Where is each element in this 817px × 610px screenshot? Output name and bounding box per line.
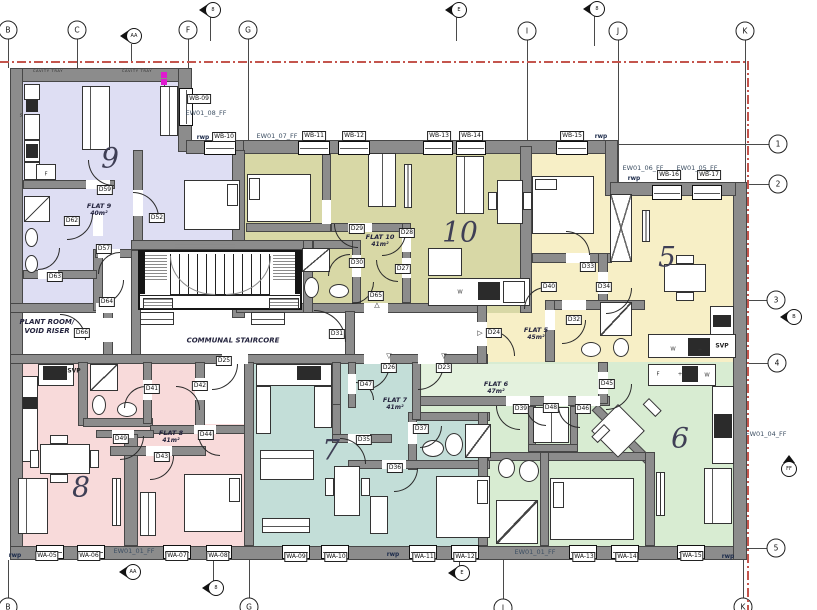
kitchen-unit (256, 386, 271, 434)
ttext (143, 255, 167, 281)
dining-table (40, 444, 90, 474)
window-tag-wa-12: WA-12 (453, 552, 476, 562)
door-tag-d36: D36 (387, 463, 403, 473)
section-marker-aa: AA (119, 564, 141, 580)
sdiv (140, 295, 300, 296)
window-tag-wa-14: WA-14 (615, 552, 638, 562)
srail (295, 252, 300, 294)
text-s: s (20, 112, 23, 118)
room-label-plant-room: PLANT ROOM/VOID RISER (20, 318, 75, 336)
window-tag-wa-08: WA-08 (206, 551, 229, 561)
text-: ▽ (441, 352, 446, 360)
radiator (656, 472, 665, 516)
site-boundary (747, 61, 749, 610)
room-number-6: 6 (671, 422, 689, 455)
a2: 41m² (383, 404, 407, 412)
text-f: F (656, 371, 659, 377)
text-ew01-06-ff: EW01_06_FF (622, 164, 663, 172)
room-number-8: 8 (72, 471, 90, 504)
circ: AA (125, 564, 141, 580)
pillow (553, 482, 564, 508)
room-label-communal-staircore: COMMUNAL STAIRCORE (187, 337, 280, 346)
door-tag-d24: D24 (486, 328, 502, 338)
window-tag-wa-15: WA-15 (680, 551, 703, 561)
grid-bubble-i: I (494, 599, 513, 610)
oven (713, 315, 731, 327)
gap (322, 200, 331, 224)
window-wb10 (204, 141, 236, 155)
pillow (477, 480, 488, 504)
section-marker-8: 8 (202, 580, 224, 596)
circ: E (454, 565, 470, 581)
gap (562, 300, 586, 310)
window-tag-wb-14: WB-14 (459, 131, 483, 141)
floor-plan: D59D62D52D57D63D64D66D31D25D29D28D30D27D… (0, 0, 817, 610)
chair (30, 450, 39, 468)
wardrobe (140, 492, 156, 536)
pillow (249, 178, 260, 200)
wall (540, 452, 549, 546)
circ: FF (781, 461, 797, 477)
radiator (404, 164, 412, 208)
chair (90, 450, 99, 468)
circ: 8 (208, 580, 224, 596)
gline (527, 40, 528, 140)
stair-landing (140, 312, 174, 325)
kitchen-unit (24, 84, 40, 100)
circ: 8 (205, 2, 221, 18)
chair (325, 478, 334, 496)
door-tag-d45: D45 (599, 379, 615, 389)
div: PLANT ROOM/ (20, 318, 75, 327)
window-tag-wa-05: WA-05 (35, 551, 58, 561)
grid-bubble-1: 1 (769, 135, 788, 154)
sink (297, 366, 321, 380)
window-tag-wa-07: WA-07 (165, 551, 188, 561)
gline (213, 560, 214, 581)
text-: + (698, 347, 703, 353)
door-tag-d44: D44 (198, 430, 214, 440)
a2: 47m² (484, 388, 508, 396)
window-wb15 (556, 141, 588, 155)
door-tag-d52: D52 (149, 213, 165, 223)
door-tag-d49: D49 (113, 434, 129, 444)
staircase (138, 250, 302, 310)
text-cavity-tray: CAVITY TRAY (33, 69, 63, 73)
shower (24, 196, 50, 222)
toilet (613, 338, 629, 357)
door-tag-d33: D33 (580, 262, 596, 272)
door-tag-d29: D29 (349, 224, 365, 234)
window-tag-wb-13: WB-13 (427, 131, 451, 141)
flat-label-flat-9: FLAT 940m² (87, 202, 111, 218)
kitchen-unit (314, 386, 332, 428)
grid-bubble-k: K (734, 598, 753, 610)
text-f: F (44, 171, 47, 177)
text-ew01-05-ff: EW01_05_FF (676, 164, 717, 172)
text-svp: SVP (715, 343, 728, 350)
circ: AA (126, 28, 142, 44)
mag (161, 72, 167, 78)
window-wb17 (692, 185, 722, 200)
gline (77, 39, 78, 68)
window-tag-wb-09: WB-09 (187, 94, 211, 104)
pillow (227, 184, 238, 206)
toilet (519, 460, 539, 482)
section-marker-b: B (780, 309, 802, 325)
flat-label-flat-10: FLAT 1041m² (366, 233, 395, 249)
door-tag-d47: D47 (358, 380, 374, 390)
door-tag-d25: D25 (216, 356, 232, 366)
shower (90, 364, 118, 391)
wall (645, 452, 655, 546)
oven (26, 100, 38, 112)
dining-table (334, 466, 360, 516)
door-tag-d64: D64 (99, 297, 115, 307)
sbox (143, 298, 173, 309)
text-rwp: rwp (595, 132, 607, 139)
door-tag-d26: D26 (381, 363, 397, 373)
chair (361, 478, 370, 496)
shower (496, 500, 538, 544)
wall (246, 223, 331, 232)
div: VOID RISER (20, 327, 75, 336)
a2: 40m² (87, 210, 111, 218)
sink (478, 282, 500, 300)
grid-bubble-k: K (736, 22, 755, 41)
text-rwp: rwp (9, 551, 21, 558)
door-tag-d65: D65 (368, 291, 384, 301)
gline (249, 560, 250, 600)
window-tag-wb-15: WB-15 (560, 131, 584, 141)
room-number-5: 5 (658, 241, 676, 274)
door-tag-d46: D46 (575, 404, 591, 414)
text-svp: SVP (67, 368, 80, 375)
window-wb14 (456, 141, 486, 155)
grid-bubble-3: 3 (767, 291, 786, 310)
door-tag-d31: D31 (329, 329, 345, 339)
basin (329, 284, 349, 298)
wall (488, 452, 650, 461)
gline (743, 560, 744, 600)
grid-bubble-g: G (239, 21, 258, 40)
sink (43, 366, 67, 380)
window-tag-wa-13: WA-13 (572, 552, 595, 562)
gline (8, 560, 9, 600)
window-tag-wa-10: WA-10 (324, 552, 347, 562)
window-wb12 (338, 141, 370, 155)
flat-label-flat-8: FLAT 841m² (159, 429, 183, 445)
text-cavity-tray: CAVITY TRAY (122, 69, 152, 73)
kitchen-unit (428, 248, 462, 276)
flat-label-flat-7: FLAT 741m² (383, 396, 407, 412)
door-tag-d41: D41 (144, 384, 160, 394)
gline (503, 560, 504, 602)
a2: 45m² (524, 334, 548, 342)
door-tag-d42: D42 (192, 381, 208, 391)
window-tag-wa-11: WA-11 (412, 552, 435, 562)
section-marker-aa: AA (120, 28, 142, 44)
wall (528, 444, 578, 452)
window-tag-wb-12: WB-12 (342, 131, 366, 141)
gline (248, 39, 249, 142)
oven (714, 414, 732, 438)
door-tag-d28: D28 (399, 228, 415, 238)
door-tag-d39: D39 (513, 404, 529, 414)
door-tag-d48: D48 (543, 403, 559, 413)
gline (456, 17, 457, 41)
gline (610, 144, 770, 145)
toilet (304, 277, 319, 298)
window-tag-wa-06: WA-06 (77, 551, 100, 561)
grid-bubble-j: J (609, 22, 628, 41)
window-wb16 (652, 185, 682, 200)
window-tag-wb-11: WB-11 (302, 131, 326, 141)
door-tag-d37: D37 (413, 424, 429, 434)
gline (747, 300, 768, 301)
text-w: W (457, 289, 462, 295)
grid-bubble-i: I (518, 22, 537, 41)
window-wb13 (423, 141, 453, 155)
door-tag-d62: D62 (64, 216, 80, 226)
stair-landing (251, 312, 285, 325)
door-tag-d35: D35 (356, 435, 372, 445)
room-number-9: 9 (101, 142, 119, 175)
chair (676, 292, 694, 301)
srail (140, 252, 145, 294)
text-w: W (670, 346, 675, 352)
door-tag-d40: D40 (541, 282, 557, 292)
gline (747, 363, 768, 364)
text-: ▷ (477, 329, 482, 337)
basin (25, 255, 38, 273)
section-marker-e: E (448, 565, 470, 581)
chair (50, 474, 68, 483)
section-marker-8: 8 (199, 2, 221, 18)
text-: ▽ (386, 352, 391, 360)
a1: FLAT 8 (159, 429, 183, 437)
text-: △ (374, 301, 379, 309)
chair (50, 435, 68, 444)
a2: 41m² (159, 437, 183, 445)
site-boundary (0, 61, 749, 63)
text-rwp: rwp (628, 174, 640, 181)
gline (747, 548, 768, 549)
a2: 41m² (366, 241, 395, 249)
text-ew01-01-ff: EW01_01_FF (113, 547, 154, 555)
section-marker-8: 8 (583, 1, 605, 17)
door-tag-d66: D66 (74, 328, 90, 338)
door-tag-d34: D34 (596, 282, 612, 292)
dresser (370, 496, 388, 534)
room-number-10: 10 (442, 216, 478, 249)
grid-bubble-c: C (68, 21, 87, 40)
coffee-table (262, 518, 310, 533)
text-ew01-08-ff: EW01_08_FF (185, 109, 226, 117)
section-marker-e: E (445, 2, 467, 18)
chair (676, 255, 694, 264)
room-number-7: 7 (322, 434, 340, 467)
toilet (445, 433, 463, 456)
door-tag-d43: D43 (154, 452, 170, 462)
wardrobe (160, 86, 178, 136)
dining-table (497, 180, 523, 224)
door-tag-d27: D27 (395, 264, 411, 274)
sofa (18, 478, 48, 534)
grid-bubble-g: G (240, 598, 259, 610)
sink (682, 366, 698, 382)
text-: + (678, 371, 683, 377)
text-ew01-04-ff: EW01_04_FF (745, 430, 786, 438)
grid-bubble-5: 5 (767, 539, 786, 558)
hob (26, 144, 38, 158)
a1: FLAT 10 (366, 233, 395, 241)
chair (523, 192, 532, 210)
wall (348, 460, 490, 469)
a1: FLAT 9 (87, 202, 111, 210)
radiator (112, 478, 121, 526)
circ: E (451, 2, 467, 18)
a1: FLAT 5 (524, 326, 548, 334)
gline (8, 39, 9, 68)
door-tag-d30: D30 (349, 258, 365, 268)
pillow (229, 478, 240, 502)
grid-bubble-4: 4 (768, 354, 787, 373)
door-tag-d57: D57 (96, 244, 112, 254)
wardrobe (368, 153, 396, 207)
sofa (82, 86, 110, 150)
section-marker-ff: FF (781, 455, 797, 477)
text-rwp: rwp (197, 133, 209, 140)
wall (244, 362, 254, 546)
window-tag-wa-09: WA-09 (284, 552, 307, 562)
a1: FLAT 7 (383, 396, 407, 404)
text-rwp: rwp (387, 550, 399, 557)
door-tag-d23: D23 (436, 363, 452, 373)
pillow (535, 179, 557, 190)
circ: 8 (589, 1, 605, 17)
sofa (260, 450, 314, 480)
wall (733, 182, 747, 560)
hob (503, 281, 525, 303)
basin (498, 458, 515, 478)
text-ew01-01-ff: EW01_01_FF (514, 548, 555, 556)
flat-label-flat-6: FLAT 647m² (484, 380, 508, 396)
window-wb11 (298, 141, 330, 155)
div: COMMUNAL STAIRCORE (187, 337, 280, 346)
sofa (704, 468, 732, 524)
shower (465, 424, 491, 458)
door-tag-d63: D63 (47, 272, 63, 282)
a1: FLAT 6 (484, 380, 508, 388)
gap (103, 318, 113, 342)
toilet (25, 228, 38, 247)
gline (131, 44, 132, 62)
flat-label-flat-5: FLAT 545m² (524, 326, 548, 342)
sbox (269, 298, 299, 309)
text-rwp: rwp (722, 552, 734, 559)
window-tag-wb-10: WB-10 (212, 132, 236, 142)
mag (161, 79, 167, 85)
wardrobe (610, 194, 632, 262)
sofa (456, 156, 484, 214)
gline (188, 39, 189, 68)
gline (594, 16, 595, 46)
basin (581, 342, 601, 357)
circ: B (786, 309, 802, 325)
door-tag-d59: D59 (97, 185, 113, 195)
text-w: W (704, 372, 709, 378)
grid-bubble-b: B (0, 21, 18, 40)
text-ew01-07-ff: EW01_07_FF (256, 132, 297, 140)
shower (302, 248, 330, 272)
grid-bubble-2: 2 (769, 175, 788, 194)
door-tag-d32: D32 (566, 315, 582, 325)
grid-bubble-f: F (179, 21, 198, 40)
ttext (175, 244, 235, 248)
toilet (92, 395, 106, 415)
ttext (273, 255, 297, 281)
kitchen-unit (24, 114, 40, 140)
grid-bubble-b: B (0, 598, 18, 610)
chair (488, 192, 497, 210)
gline (210, 17, 211, 41)
gap (348, 374, 356, 394)
oven (23, 397, 37, 409)
radiator (642, 210, 650, 242)
